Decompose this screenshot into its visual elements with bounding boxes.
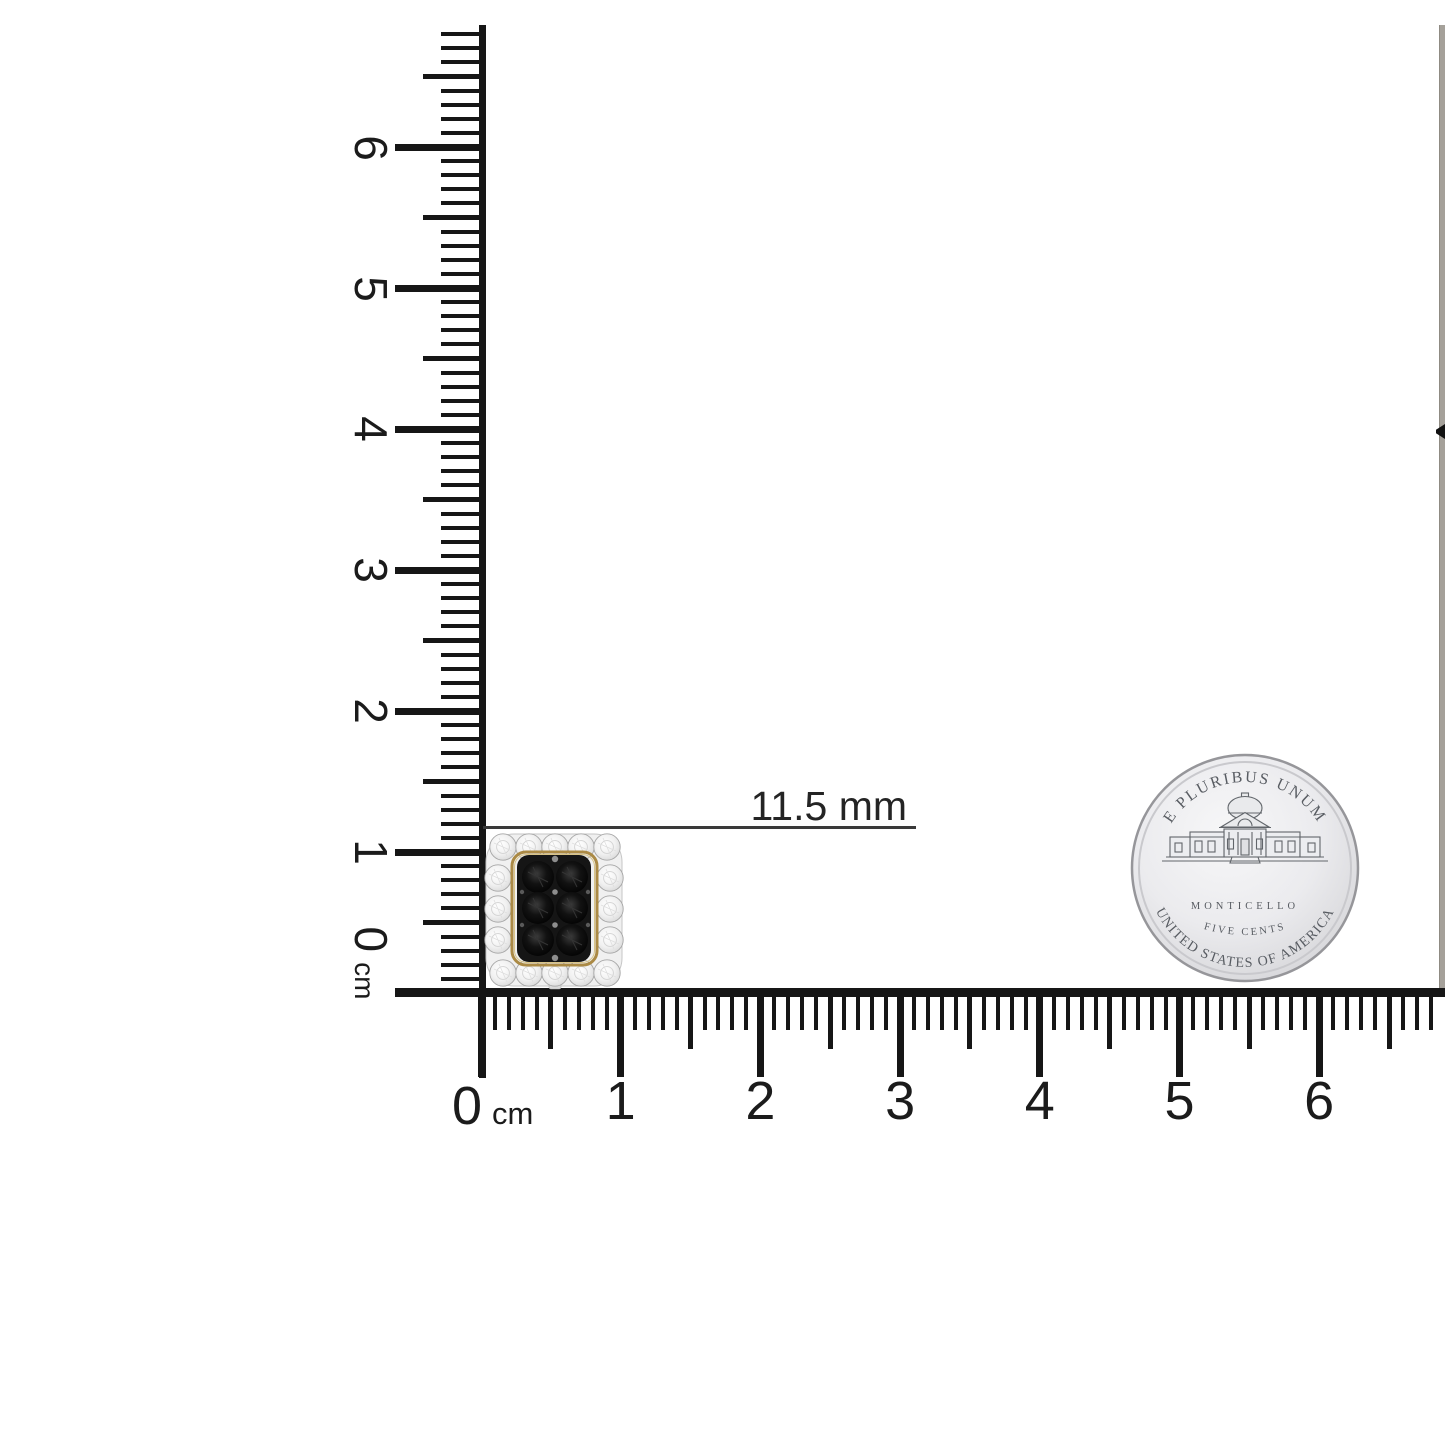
ruler-tick — [441, 653, 486, 657]
unit-label: cm — [492, 1098, 533, 1129]
ruler-tick — [395, 708, 486, 715]
horizontal-ruler-zero-label: 0 cm — [452, 1079, 533, 1133]
ruler-tick — [884, 989, 888, 1030]
ruler-tick — [1094, 989, 1098, 1030]
ruler-tick — [441, 230, 486, 234]
ruler-tick — [441, 328, 486, 332]
ruler-tick — [441, 963, 486, 967]
ruler-tick — [591, 989, 595, 1030]
ruler-tick — [1191, 989, 1195, 1030]
ruler-tick — [1303, 989, 1307, 1030]
ruler-tick — [423, 779, 486, 784]
ruler-tick — [441, 540, 486, 544]
ruler-tick — [441, 32, 486, 36]
ruler-tick — [441, 582, 486, 586]
ruler-tick — [441, 751, 486, 755]
ruler-tick — [647, 989, 651, 1030]
ruler-tick — [441, 46, 486, 50]
ruler-tick — [441, 892, 486, 896]
ruler-tick — [441, 596, 486, 600]
ruler-tick — [1080, 989, 1084, 1030]
ruler-tick — [441, 667, 486, 671]
ruler-tick — [856, 989, 860, 1030]
ruler-tick — [441, 399, 486, 403]
ruler-tick — [441, 808, 486, 812]
ruler-tick — [441, 737, 486, 741]
ruler-tick — [1261, 989, 1265, 1030]
ruler-tick — [577, 989, 581, 1030]
ruler-tick — [441, 977, 486, 981]
ruler-number: 6 — [348, 135, 394, 161]
coin-body — [1132, 755, 1358, 981]
ruler-number: 4 — [348, 417, 394, 443]
ruler-tick — [441, 526, 486, 530]
vertical-ruler-zero-label: 0 cm — [348, 927, 394, 1000]
ruler-number: 1 — [606, 1074, 636, 1128]
coin-monticello-label: MONTICELLO — [1191, 901, 1299, 912]
ruler-tick — [441, 342, 486, 346]
ruler-tick — [1122, 989, 1126, 1030]
ruler-tick — [441, 455, 486, 459]
ruler-number: 4 — [1025, 1074, 1055, 1128]
ruler-tick — [982, 989, 986, 1030]
ruler-tick — [1205, 989, 1209, 1030]
ruler-tick — [996, 989, 1000, 1030]
ruler-tick — [423, 356, 486, 361]
ruler-tick — [441, 201, 486, 205]
ruler-tick — [703, 989, 707, 1030]
ruler-tick — [1136, 989, 1140, 1030]
ruler-tick — [1387, 989, 1392, 1049]
ruler-number: 3 — [885, 1074, 915, 1128]
ruler-tick — [441, 935, 486, 939]
ruler-tick — [730, 989, 734, 1030]
ruler-tick — [423, 920, 486, 925]
zero-digit: 0 — [452, 1079, 482, 1133]
unit-label: cm — [350, 962, 378, 999]
ruler-tick — [1036, 989, 1043, 1077]
ruler-tick — [441, 187, 486, 191]
ruler-tick — [395, 426, 486, 433]
ruler-number: 2 — [348, 698, 394, 724]
ruler-tick — [800, 989, 804, 1030]
ruler-tick — [441, 864, 486, 868]
ruler-tick — [441, 173, 486, 177]
ruler-number: 3 — [348, 558, 394, 584]
ruler-tick — [441, 371, 486, 375]
ruler-tick — [441, 765, 486, 769]
ruler-tick — [688, 989, 693, 1049]
ruler-tick — [1247, 989, 1252, 1049]
ruler-tick — [441, 469, 486, 473]
ruler-tick — [1429, 989, 1433, 1030]
ruler-tick — [563, 989, 567, 1030]
ruler-number: 2 — [745, 1074, 775, 1128]
ruler-tick — [441, 103, 486, 107]
ruler-tick — [912, 989, 916, 1030]
ruler-tick — [441, 131, 486, 135]
ruler-tick — [828, 989, 833, 1049]
ruler-tick — [441, 117, 486, 121]
ruler-tick — [772, 989, 776, 1030]
zero-digit: 0 — [348, 927, 394, 953]
ruler-tick — [675, 989, 679, 1030]
ruler-tick — [757, 989, 764, 1077]
ruler-tick — [1052, 989, 1056, 1030]
ruler-tick — [744, 989, 748, 1030]
ruler-tick — [521, 989, 525, 1030]
ruler-tick — [633, 989, 637, 1030]
ruler-tick — [1176, 989, 1183, 1077]
ruler-tick — [507, 989, 511, 1030]
ruler-tick — [441, 610, 486, 614]
ruler-tick — [441, 300, 486, 304]
earring-image — [483, 828, 625, 992]
ruler-tick — [441, 441, 486, 445]
ruler-number: 5 — [348, 276, 394, 302]
ruler-tick — [423, 638, 486, 643]
ruler-tick — [1401, 989, 1405, 1030]
ruler-tick — [441, 822, 486, 826]
ruler-tick — [661, 989, 665, 1030]
ruler-tick — [395, 285, 486, 292]
ruler-tick — [1359, 989, 1363, 1030]
ruler-tick — [395, 144, 486, 151]
ruler-tick — [1289, 989, 1293, 1030]
ruler-tick — [441, 906, 486, 910]
ruler-tick — [441, 836, 486, 840]
ruler-tick — [441, 681, 486, 685]
ruler-tick — [423, 497, 486, 502]
ruler-tick — [423, 74, 486, 79]
ruler-number: 5 — [1164, 1074, 1194, 1128]
ruler-tick — [441, 949, 486, 953]
ruler-tick — [842, 989, 846, 1030]
ruler-tick — [441, 794, 486, 798]
ruler-tick — [1275, 989, 1279, 1030]
ruler-tick — [548, 989, 553, 1049]
ruler-tick — [716, 989, 720, 1030]
ruler-tick — [441, 624, 486, 628]
ruler-tick — [1024, 989, 1028, 1030]
ruler-tick — [940, 989, 944, 1030]
ruler-tick — [395, 567, 486, 574]
ruler-tick — [441, 695, 486, 699]
ruler-tick — [954, 989, 958, 1030]
ruler-tick — [493, 989, 497, 1030]
ruler-tick — [786, 989, 790, 1030]
ruler-tick — [1233, 989, 1237, 1030]
ruler-tick — [1219, 989, 1223, 1030]
ruler-tick — [1316, 989, 1323, 1077]
ruler-tick — [605, 989, 609, 1030]
ruler-tick — [1331, 989, 1335, 1030]
ruler-tick — [441, 723, 486, 727]
ruler-tick — [441, 385, 486, 389]
ruler-tick — [441, 272, 486, 276]
ruler-tick — [1107, 989, 1112, 1049]
ruler-tick — [1345, 989, 1349, 1030]
ruler-tick — [423, 215, 486, 220]
ruler-tick — [395, 849, 486, 856]
ruler-tick — [441, 878, 486, 882]
ruler-tick — [1066, 989, 1070, 1030]
ruler-tick — [967, 989, 972, 1049]
ruler-tick — [1010, 989, 1014, 1030]
ruler-tick — [441, 512, 486, 516]
right-partial-ruler — [1439, 25, 1445, 988]
ruler-tick — [441, 258, 486, 262]
ruler-tick — [1164, 989, 1168, 1030]
ruler-tick — [814, 989, 818, 1030]
ruler-tick — [441, 413, 486, 417]
ruler-tick — [926, 989, 930, 1030]
ruler-tick — [870, 989, 874, 1030]
ruler-tick — [441, 314, 486, 318]
ruler-tick — [1373, 989, 1377, 1030]
coin-image: E PLURIBUS UNUM UNITED STATES OF AMERICA… — [1128, 751, 1362, 985]
ruler-tick — [441, 483, 486, 487]
ruler-number: 1 — [348, 839, 394, 865]
ruler-tick — [897, 989, 904, 1077]
ruler-number: 6 — [1304, 1074, 1334, 1128]
ruler-tick — [441, 554, 486, 558]
ruler-tick — [441, 60, 486, 64]
ruler-tick — [441, 159, 486, 163]
ruler-tick — [1150, 989, 1154, 1030]
ruler-tick — [535, 989, 539, 1030]
ruler-tick — [617, 989, 624, 1077]
ruler-tick — [1415, 989, 1419, 1030]
product-scale-image: 123456 0 cm 123456 0 cm 11.5 mm — [0, 0, 1445, 1445]
ruler-tick — [478, 989, 485, 1077]
ruler-tick — [441, 89, 486, 93]
ruler-tick — [441, 244, 486, 248]
measurement-label: 11.5 mm — [700, 786, 907, 827]
